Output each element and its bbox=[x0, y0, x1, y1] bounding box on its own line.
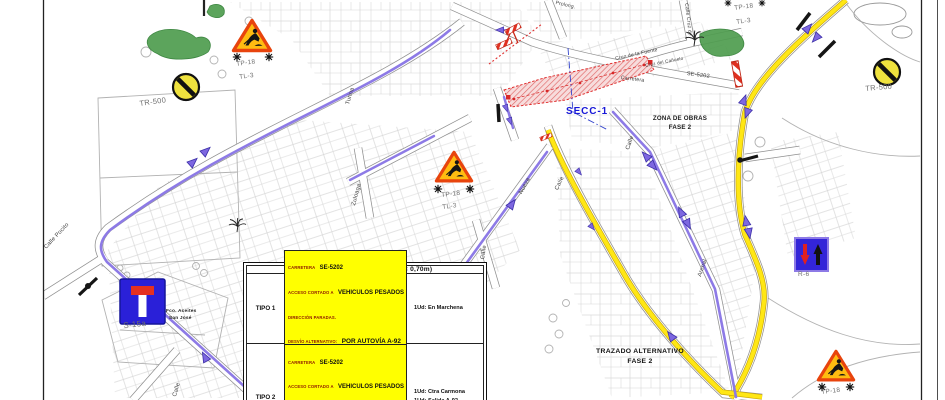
dead-end-sign-icon bbox=[120, 279, 165, 324]
sign-label-r6: R-6 bbox=[798, 272, 809, 279]
flashing-light-icon bbox=[725, 0, 732, 6]
units-cell: 1Ud: Ctra Carmona 1Ud: Salida A-92 bbox=[407, 388, 483, 400]
sign-type-label: TIPO 2 bbox=[247, 394, 284, 400]
units-cell: 1Ud: En Marchena bbox=[407, 304, 483, 314]
panel-road-value: SE-5202 bbox=[320, 360, 343, 366]
panel-road-value: SE-5202 bbox=[320, 265, 343, 271]
alternative-route-label: TRAZADO ALTERNATIVO bbox=[584, 349, 696, 356]
alternative-route-phase-label: FASE 2 bbox=[584, 359, 696, 366]
priority-over-oncoming-sign-icon bbox=[795, 238, 828, 271]
signs-to-install-table: CARTELES A INSTALAR (2,00m × 0,70m) TIPO… bbox=[243, 262, 487, 400]
business-label-line1: Fco. Aceites bbox=[166, 310, 196, 315]
unit-line: 1Ud: Ctra Carmona bbox=[414, 388, 483, 398]
panel-road-label: CARRETERA bbox=[288, 265, 315, 270]
table-row: TIPO 2 CARRETERA SE-5202 ACCESO CORTADO … bbox=[247, 344, 483, 400]
panel-direction-label: DIRECCIÓN PARADAS. bbox=[288, 315, 336, 320]
panel-access-value: VEHICULOS PESADOS bbox=[338, 290, 404, 296]
section-label-secc1: SECC-1 bbox=[566, 107, 608, 117]
panel-access-label: ACCESO CORTADO A bbox=[288, 384, 334, 389]
flashing-light-icon bbox=[265, 53, 273, 61]
panel-road-label: CARRETERA bbox=[288, 360, 315, 365]
work-zone-phase-label: FASE 2 bbox=[644, 125, 716, 131]
signs-table-inner: CARTELES A INSTALAR (2,00m × 0,70m) TIPO… bbox=[246, 265, 484, 400]
unit-line: 1Ud: En Marchena bbox=[414, 304, 483, 314]
sign-type-label: TIPO 1 bbox=[247, 305, 284, 312]
table-row: TIPO 1 CARRETERA SE-5202 ACCESO CORTADO … bbox=[247, 274, 483, 344]
flashing-light-icon bbox=[846, 383, 854, 391]
flashing-light-icon bbox=[466, 185, 474, 193]
panel-access-label: ACCESO CORTADO A bbox=[288, 290, 334, 295]
flashing-light-icon bbox=[759, 0, 766, 6]
business-label-line2: San José bbox=[169, 317, 192, 322]
sign-panel-tipo2: CARRETERA SE-5202 ACCESO CORTADO A VEHIC… bbox=[284, 344, 407, 400]
works-warning-sign-icon bbox=[234, 21, 271, 51]
works-traffic-plan: Turina Zuloaga Prolong. Calle Cruz de Cr… bbox=[0, 0, 945, 400]
end-of-prohibitions-sign-icon bbox=[173, 74, 199, 100]
work-zone-label: ZONA DE OBRAS bbox=[644, 116, 716, 122]
panel-access-value: VEHICULOS PESADOS bbox=[338, 384, 404, 390]
